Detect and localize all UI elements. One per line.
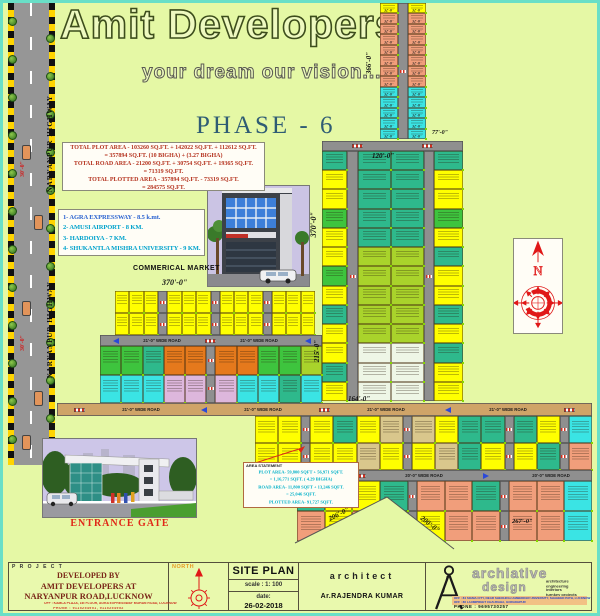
plot-cell [143,346,164,375]
plot-cell [279,375,300,404]
wide-road-21-main: 21'-0" WIDE ROAD 21'-0" WIDE ROAD 21'-0"… [57,403,592,416]
road-arrow-icon [483,473,492,479]
date-value: 26-02-2018 [229,601,298,610]
tree-icon [8,55,17,64]
phase-title: PHASE - 6 [196,113,336,138]
plot-cell: 32'-0" [408,118,426,128]
inner-road [211,291,220,313]
plot-cell [481,443,504,470]
titleblock-siteplan-col: SITE PLAN scale : 1: 100 date: 26-02-201… [229,563,299,610]
plot-cell [196,291,210,313]
titleblock-north-col: NORTH [169,563,229,610]
car-icon [34,391,43,406]
plot-cell [286,313,300,335]
plot-cell [121,375,142,404]
plot-cell [391,247,424,266]
wide-road-21-upper: 21'-0" WIDE ROAD 21'-0" WIDE ROAD [100,335,322,346]
plot-cell: 32'-0" [380,13,398,23]
plot-cell [248,291,262,313]
firm-name: archiative [472,565,547,581]
road-label: 21'-0" WIDE ROAD [123,407,161,412]
plot-cell: 32'-0" [408,66,426,76]
plot-cell [391,363,424,382]
road-marker [205,339,216,343]
plot-cell: 32'-0" [380,97,398,107]
dim-215: 215'-0" [313,340,321,362]
plot-cell: 32'-0" [408,34,426,44]
connector-road [322,141,463,151]
car-icon [22,145,31,160]
plot-cell [412,443,435,470]
plot-cell [380,416,403,443]
titleblock-project-col: P R O J E C T DEVELOPED BY AMIT DEVELOPE… [9,563,169,610]
highway-label-bottom: NARYANPUR HIGHWAY [46,281,54,378]
road-arrow-icon [198,407,207,413]
plot-cell: 32'-0" [380,87,398,97]
tree-icon [46,72,55,81]
naryanpur-highway: NARYANPUR HIGHWAY NARYANPUR HIGHWAY 30'-… [8,3,55,465]
plot-cell: 32'-0" [380,108,398,118]
summary-line: = 71319 SQ.FT. [64,169,263,177]
plot-cell [322,189,347,208]
plot-cell [164,346,185,375]
road-label: 20'-0" WIDE ROAD [406,473,444,478]
plot-cell [234,291,248,313]
summary-line: = 357894 SQ.FT. (10 BIGHA) + (3.27 BIGHA… [64,153,263,161]
plot-block-central [322,151,463,401]
block-road-west [347,151,358,401]
plot-cell [358,343,391,362]
inner-road [505,443,514,470]
tree-icon [46,224,55,233]
date-label: date: [229,594,298,600]
summary-line: TOTAL PLOTTED AREA - 357894 SQ.FT. - 733… [64,177,263,185]
firm-services: architecture engineering interiors turnk… [546,580,577,597]
tree-icon [8,397,17,406]
title-block: P R O J E C T DEVELOPED BY AMIT DEVELOPE… [8,562,592,611]
plot-cell [358,247,391,266]
inner-road [158,291,167,313]
plot-cell [458,416,481,443]
road-label: 21'-0" WIDE ROAD [489,407,527,412]
road-arrow-icon [302,338,311,344]
inner-road [403,416,412,443]
area-statement-box: AREA STATEMENT PLOT AREA- 59,800 SQFT + … [243,462,359,508]
car-icon [22,435,31,450]
plot-cell [358,324,391,343]
plot-cell [115,313,129,335]
area-statement-header: AREA STATEMENT [246,464,334,469]
plot-strip-north: 32'-0"32'-0"32'-0"32'-0"32'-0"32'-0"32'-… [380,3,426,139]
plot-cell [215,375,236,404]
titleblock-firm-col: archiative design architecture engineeri… [426,563,591,610]
north-compass-icon [183,568,215,610]
plot-cell [167,291,181,313]
plot-cell [435,416,458,443]
plot-cell [434,189,463,208]
tree-icon [8,169,17,178]
plot-cell [412,416,435,443]
plot-cell [182,313,196,335]
plot-cell: 32'-0" [380,3,398,13]
plot-cell [358,363,391,382]
plot-cell [358,209,391,228]
plot-cell: 32'-0" [380,76,398,86]
road-marker [74,408,85,412]
plot-cell [435,443,458,470]
plot-cell [358,266,391,285]
developer-name: AMIT DEVELOPERS AT [9,581,168,591]
plot-cell [310,416,333,443]
plot-cell [164,375,185,404]
plot-cell [167,313,181,335]
strip-road [398,3,408,139]
plot-cell [380,443,403,470]
plot-cell: 32'-0" [380,129,398,139]
project-label: P R O J E C T [12,564,63,570]
plot-cell [537,416,560,443]
plot-cell: 32'-0" [380,34,398,44]
plot-cell [391,189,424,208]
svg-text:N: N [533,264,542,278]
plot-cell: 32'-0" [408,24,426,34]
summary-line: TOTAL ROAD AREA - 21200 SQ.FT. + 30754 S… [64,161,263,169]
road-arrow-icon [110,338,119,344]
plot-cell [129,313,143,335]
plot-cell [215,346,236,375]
site-plan-poster: NARYANPUR HIGHWAY NARYANPUR HIGHWAY 30'-… [0,0,600,616]
plot-cell [322,343,347,362]
plot-cell [322,286,347,305]
dim-370-horizontal: 370'-0" [162,278,187,287]
plot-cell [255,416,278,443]
plot-block-west-upper [115,291,315,335]
plot-cell [301,291,315,313]
plot-cell [434,228,463,247]
plot-cell [322,266,347,285]
plot-cell [434,266,463,285]
plot-cell: 32'-0" [408,87,426,97]
plot-cell [391,343,424,362]
highway-centerline [30,3,32,465]
tree-icon [46,262,55,271]
road-label: 21'-0" WIDE ROAD [244,407,282,412]
plot-cell [278,416,301,443]
plot-cell [322,324,347,343]
plot-cell [258,375,279,404]
tree-icon [8,321,17,330]
plot-cell [185,346,206,375]
inner-road [211,313,220,335]
tree-icon [8,17,17,26]
firm-phone: PHONE : 9695730257 [454,605,509,609]
entrance-gate-label: ENTRANCE GATE [60,518,180,529]
statement-line: = 25,046 SQFT. [256,492,346,498]
developed-by: DEVELOPED BY [9,571,168,580]
tree-icon [8,207,17,216]
car-icon [34,215,43,230]
drawing-title: SITE PLAN [229,565,298,577]
divider [229,591,298,592]
inner-road [263,291,272,313]
dim-164: 164'-0" [348,395,370,403]
statement-line: = 1,16,771 SQFT. ( 4.29 BIGHA) [256,477,346,483]
plot-cell [322,363,347,382]
scale-value: scale : 1: 100 [229,582,298,588]
plot-cell [391,382,424,401]
plot-cell [322,151,347,170]
dim-77: 77'-0" [432,130,448,136]
tree-icon [8,359,17,368]
plot-cell [258,346,279,375]
plot-cell [357,443,380,470]
plot-cell [129,291,143,313]
page-title: Amit Developers [60,4,399,45]
plot-cell [434,363,463,382]
road-label: 21'-0" WIDE ROAD [144,338,182,343]
distance-item: 3- HARDOIYA - 7 KM. [63,234,200,244]
plot-cell [434,324,463,343]
plot-cell: 32'-0" [408,45,426,55]
plot-cell: 32'-0" [408,55,426,65]
plot-cell [391,286,424,305]
tree-icon [8,435,17,444]
plot-cell: 32'-0" [380,55,398,65]
road-label: 20'-0" WIDE ROAD [533,473,571,478]
plot-cell: 32'-0" [380,118,398,128]
plot-cell [182,291,196,313]
road-label: 21'-0" WIDE ROAD [241,338,279,343]
compass-rose-icon: N [514,239,562,333]
plot-cell [358,305,391,324]
plot-cell [322,209,347,228]
dim-120: 120'-0" [372,152,394,160]
plot-cell [272,291,286,313]
plot-cell [322,228,347,247]
gate-illustration [43,439,196,517]
plot-cell [514,416,537,443]
inner-road [403,443,412,470]
plot-cell [391,151,424,170]
inner-road [206,375,215,404]
plot-cell [279,346,300,375]
plot-cell [272,313,286,335]
plot-cell [144,291,158,313]
road-marker [564,408,575,412]
plot-cell [286,291,300,313]
plot-cell [434,305,463,324]
distances-box: 1- AGRA EXPRESSWAY - 8.5 k.mt. 2- AMUSI … [58,209,205,256]
plot-cell [481,416,504,443]
plot-cell [358,286,391,305]
inner-road [263,313,272,335]
plot-cell [569,416,592,443]
plot-cell [100,375,121,404]
tree-icon [8,93,17,102]
plot-cell [220,291,234,313]
statement-line: PLOT AREA- 59,800 SQFT + 56,971 SQFT. [256,470,346,476]
architect-label: architect [299,571,425,581]
plot-cell [391,170,424,189]
plot-cell [237,375,258,404]
plot-cell [322,247,347,266]
plot-cell: 32'-0" [408,3,426,13]
dim-370-vertical: 370'-0" [309,212,318,237]
plot-cell [322,170,347,189]
plot-cell: 32'-0" [408,76,426,86]
plot-cell [434,343,463,362]
road-marker [422,144,433,148]
plot-cell [537,443,560,470]
plot-cell [248,313,262,335]
plot-cell [358,228,391,247]
plot-cell: 32'-0" [380,24,398,34]
inner-road [560,416,569,443]
firm-name-2: design [482,580,527,594]
plot-cell [196,313,210,335]
tree-icon [8,131,17,140]
architect-name: Ar.RAJENDRA KUMAR [299,593,425,600]
plot-cell: 32'-0" [408,13,426,23]
plot-cell [358,189,391,208]
highway-width-dim-1: 30'-0" [20,161,26,177]
plot-cell [569,443,592,470]
plot-cell [144,313,158,335]
plot-cell [234,313,248,335]
plot-cell [434,209,463,228]
plot-cell: 32'-0" [408,97,426,107]
distance-item: 4- SHUKANTLA MISHRA UNIVERSITY - 9 KM. [63,244,200,254]
tree-icon [46,34,55,43]
area-summary-box: TOTAL PLOT AREA - 103260 SQ.FT. + 142022… [62,142,265,191]
plot-cell [391,324,424,343]
statement-line: ROAD AREA- 11,800 SQFT + 13,246 SQFT. [256,485,346,491]
plot-block-west-lower [100,346,322,403]
plot-cell [458,443,481,470]
tree-icon [8,245,17,254]
plot-cell [143,375,164,404]
inner-road [206,346,215,375]
plot-cell [115,291,129,313]
titleblock-architect-col: architect Ar.RAJENDRA KUMAR [299,563,426,610]
summary-line: TOTAL PLOT AREA - 103260 SQ.FT. + 142022… [64,145,263,153]
road-marker [352,144,363,148]
highway-width-dim-2: 30'-0" [20,335,26,351]
inner-road [560,443,569,470]
highway-checker-left [8,3,14,465]
plot-cell [391,266,424,285]
plot-cell [237,346,258,375]
highway-label-top: NARYANPUR HIGHWAY [46,95,54,192]
statement-line: PLOTTED AREA- 91,727 SQFT. [256,500,346,506]
tree-icon [8,283,17,292]
distance-item: 1- AGRA EXPRESSWAY - 8.5 k.mt. [63,213,200,223]
developer-address: NARYANPUR ROAD,LUCKNOW [9,591,168,601]
compass-box: N [513,238,563,334]
entrance-gate-photo [42,438,197,518]
plot-cell [391,305,424,324]
plot-cell [301,375,322,404]
plot-cell: 32'-0" [380,66,398,76]
plot-cell [357,416,380,443]
developer-office: OFF : KAMLA PLAZA, 1st FLOOR, AGRA EXPRE… [44,602,133,605]
developer-phone: PHONE : 9115254951, 9115254952 [44,607,133,610]
distance-item: 2- AMUSI AIRPORT - 8 KM. [63,223,200,233]
inner-road [158,313,167,335]
plot-cell [391,209,424,228]
road-marker [319,408,330,412]
commercial-market-photo [207,185,310,287]
plot-cell [391,228,424,247]
plot-cell [100,346,121,375]
dim-366: 366'-0" [365,52,373,74]
plot-cell [322,382,347,401]
divider [229,579,298,580]
plot-cell [220,313,234,335]
building-illustration [208,186,309,286]
plot-cell [121,346,142,375]
plot-cell [434,247,463,266]
plot-cell: 32'-0" [380,45,398,55]
plot-cell [434,151,463,170]
plot-cell: 32'-0" [408,129,426,139]
firm-offices: OFF : 84 SIGMA CITY, NEAR SHEOHRAJ AMBED… [454,597,590,605]
summary-line: = 284575 SQ.FT. [64,185,263,193]
car-icon [22,301,31,316]
dim-267: 267'-0" [512,518,533,525]
plot-cell [301,313,315,335]
road-arrow-icon [442,407,451,413]
inner-road [301,416,310,443]
commercial-market-label: COMMERICAL MARKET [133,265,220,272]
plot-cell: 32'-0" [408,108,426,118]
plot-cell [514,443,537,470]
plot-cell [358,170,391,189]
inner-road [505,416,514,443]
block-road-east [424,151,434,401]
road-label: 21'-0" WIDE ROAD [367,407,405,412]
plot-cell [333,416,356,443]
plot-cell [434,286,463,305]
plot-cell [322,305,347,324]
plot-cell [434,170,463,189]
plot-cell [434,382,463,401]
tree-icon [46,414,55,423]
plot-cell [185,375,206,404]
